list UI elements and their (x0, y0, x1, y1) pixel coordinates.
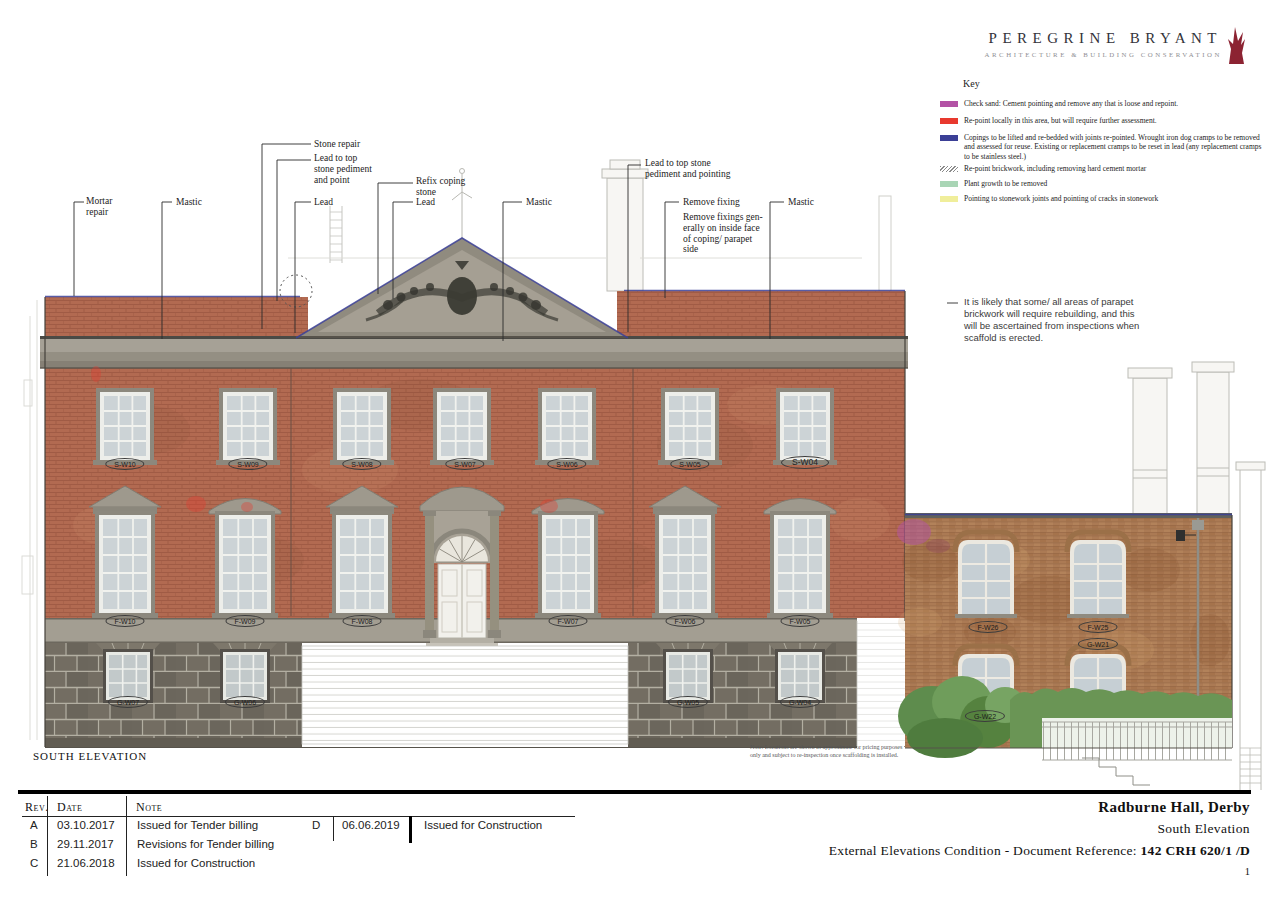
key-item-label: Check sand: Cement pointing and remove a… (964, 99, 1262, 108)
drawing-sheet: PEREGRINE BRYANT ARCHITECTURE & BUILDING… (0, 0, 1268, 902)
locations-note: Note: Locations are shown as approximate… (750, 744, 930, 759)
annotation-refix-coping: Refix coping stone (416, 176, 465, 198)
window-label: S-W08 (342, 458, 381, 470)
header-underline (22, 816, 575, 817)
window-label: F-W06 (666, 615, 705, 627)
rev-a-date: 03.10.2017 (57, 819, 115, 831)
window-label: S-W04 (781, 456, 829, 469)
rev-a-note: Issued for Tender billing (137, 819, 258, 831)
rev-d-line (333, 817, 334, 841)
entrance-door (420, 487, 504, 647)
annotation-mortar-repair: Mortar repair (86, 196, 112, 218)
rev-header: Rev. (25, 800, 49, 815)
rev-c-note: Issued for Construction (137, 857, 255, 869)
rev-a: A (30, 819, 38, 831)
logo-mark-icon (1226, 25, 1246, 65)
annotation-remove-fixing: Remove fixing (683, 197, 740, 208)
key-item-label: Re-point locally in this area, but will … (964, 116, 1262, 125)
annotation-lead-top-left: Lead to top stone pediment and point (314, 153, 372, 185)
key-item-label: Pointing to stonework joints and pointin… (964, 194, 1262, 203)
window-label: F-W09 (226, 615, 265, 627)
ground-line (45, 748, 1232, 749)
rev-column-line (47, 796, 48, 876)
annotation-lead-top-right: Lead to top stone pediment and pointing (645, 158, 731, 180)
window-label: G-W21 (1078, 638, 1118, 650)
rev-b-note: Revisions for Tender billing (137, 838, 274, 850)
annotation-mastic-left: Mastic (176, 197, 202, 208)
key-item-label: Copings to be lifted and re-bedded with … (964, 133, 1262, 161)
rev-d-note: Issued for Construction (424, 819, 542, 831)
drawing-caption: SOUTH ELEVATION (33, 750, 147, 762)
date-header: Date (57, 800, 82, 815)
window-label: F-W26 (969, 621, 1008, 633)
window-label: S-W10 (105, 458, 144, 470)
annotation-lead-left: Lead (314, 197, 333, 208)
window-label: F-W07 (549, 615, 588, 627)
rev-b: B (30, 838, 38, 850)
window-label: F-W08 (343, 615, 382, 627)
window-label: G-W05 (668, 696, 708, 708)
annotation-mastic-center: Mastic (526, 197, 552, 208)
key-item-label: Re-point brickwork, including removing h… (964, 164, 1262, 173)
annotation-remove-fixings-note: Remove fixings gen- erally on inside fac… (683, 212, 763, 255)
key-swatch-pointing-stonework (940, 196, 958, 202)
key-item-label: Plant growth to be removed (964, 179, 1262, 188)
window-label: S-W06 (547, 458, 586, 470)
key-swatch-copings (940, 135, 958, 141)
window-label: G-W04 (780, 696, 820, 708)
drawing-title: South Elevation (1157, 821, 1250, 837)
note-header: Note (136, 800, 162, 815)
page-number: 1 (1245, 866, 1250, 877)
annotation-mastic-right: Mastic (788, 197, 814, 208)
railing-sketch (1042, 718, 1232, 785)
rev-c-date: 21.06.2018 (57, 857, 115, 869)
document-reference: External Elevations Condition - Document… (829, 843, 1250, 859)
window-label: S-W07 (445, 458, 484, 470)
key-title: Key (963, 78, 980, 89)
window-label: G-W22 (965, 710, 1005, 722)
window-label: S-W09 (228, 458, 267, 470)
annotation-stone-repair: Stone repair (314, 139, 360, 150)
rev-b-date: 29.11.2017 (57, 838, 114, 850)
key-swatch-repoint-locally (940, 118, 958, 124)
window-label: G-W07 (108, 696, 148, 708)
rev-c: C (30, 857, 38, 869)
key-swatch-plant-growth (940, 181, 958, 187)
window-label: S-W05 (670, 458, 709, 470)
rev-d-date: 06.06.2019 (342, 819, 400, 831)
window-label: F-W25 (1079, 621, 1118, 633)
window-label: F-W10 (106, 615, 145, 627)
date-column-line (126, 796, 127, 876)
logo-title: PEREGRINE BRYANT (989, 30, 1222, 47)
window-label: F-W05 (781, 615, 820, 627)
rev-d-thick-line (409, 816, 412, 843)
annotation-parapet-note: It is likely that some/ all areas of par… (964, 296, 1139, 344)
key-swatch-check-sand (940, 101, 958, 107)
rev-d: D (312, 819, 320, 831)
key-swatch-repoint-brickwork (940, 166, 958, 172)
pediment (296, 238, 628, 338)
logo-subtitle: ARCHITECTURE & BUILDING CONSERVATION (985, 51, 1222, 58)
window-label: G-W06 (225, 696, 265, 708)
project-title: Radburne Hall, Derby (1098, 799, 1250, 816)
annotation-lead-right: Lead (416, 197, 435, 208)
title-block-divider (18, 790, 1251, 794)
